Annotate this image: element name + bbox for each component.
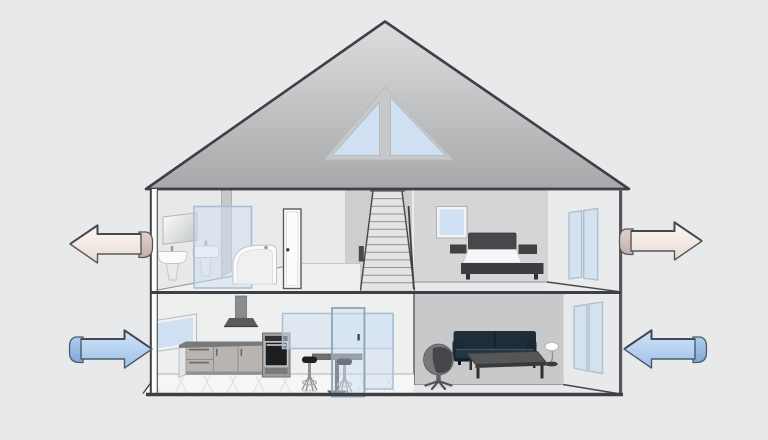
nightstand-left xyxy=(450,245,467,254)
exhaust-arrow-upper-left xyxy=(70,225,153,263)
hall-floor xyxy=(302,264,360,292)
house-ventilation-diagram: house-ventilation-cutaway xyxy=(0,0,768,440)
diagram-canvas: house-ventilation-cutaway xyxy=(0,0,768,440)
glass-balcony-doors xyxy=(569,208,598,280)
newel-post xyxy=(359,246,364,262)
mattress xyxy=(463,250,522,264)
bed-base xyxy=(461,263,544,274)
headboard xyxy=(469,233,517,250)
corner-bathtub xyxy=(233,245,277,284)
house xyxy=(143,22,629,397)
base-cabinets xyxy=(179,342,263,378)
glass-door xyxy=(332,308,365,397)
interior-door xyxy=(284,209,302,289)
wall-mirror xyxy=(163,213,197,244)
door-handle xyxy=(286,248,289,251)
bedroom-floor xyxy=(414,282,547,291)
supply-arrow-lower-left xyxy=(70,330,153,368)
roof xyxy=(146,22,629,190)
glass-door-handle xyxy=(358,334,360,341)
nightstand-right xyxy=(519,245,538,255)
supply-arrow-lower-right xyxy=(624,330,707,368)
bedroom-window xyxy=(437,207,468,239)
exhaust-arrow-upper-right xyxy=(620,222,703,260)
